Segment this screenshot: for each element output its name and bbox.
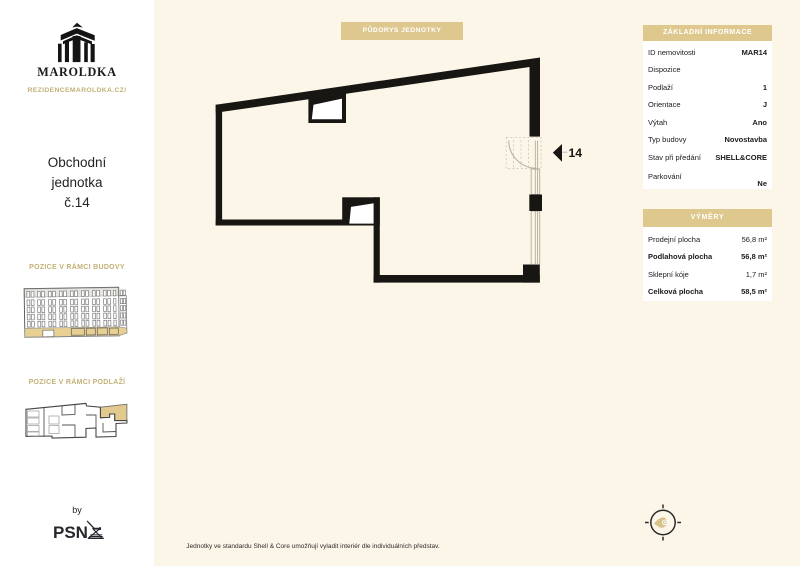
svg-text:14: 14 (569, 146, 583, 160)
